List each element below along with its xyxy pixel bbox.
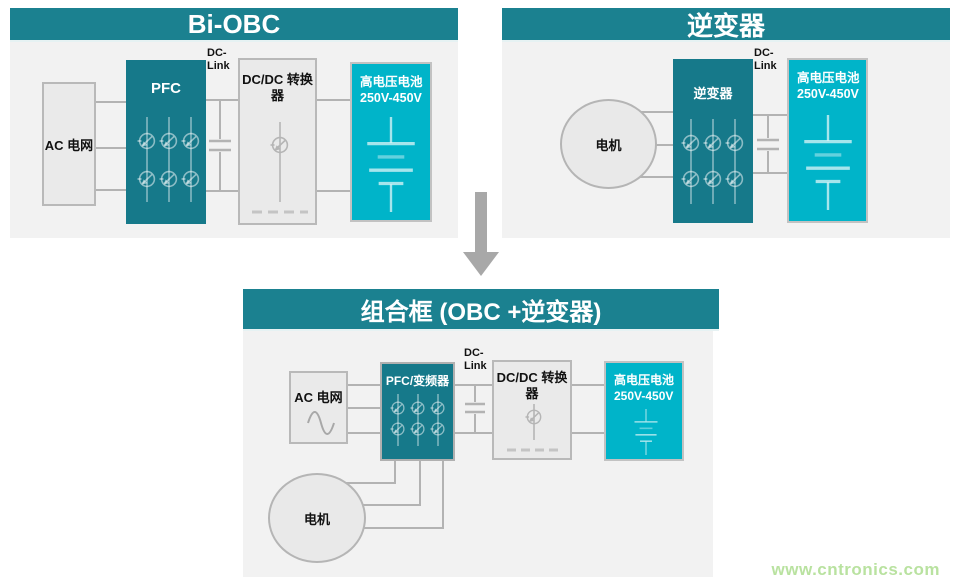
panel-combo-title: 组合框 (OBC +逆变器) xyxy=(361,292,602,327)
ac-grid-label: AC 电网 xyxy=(44,84,94,204)
panel-combo-body: DC- Link AC 电网 PFC/变频器 xyxy=(243,331,713,577)
panel-bi-obc-header: Bi-OBC xyxy=(10,8,458,42)
transistor-icon xyxy=(682,136,699,151)
dcdc-converter-box: DC/DC 转换 器 xyxy=(492,360,572,460)
dc-link-label: DC- Link xyxy=(464,347,487,372)
panel-bi-obc-title: Bi-OBC xyxy=(188,9,280,40)
motor-circle: 电机 xyxy=(268,473,366,563)
ac-grid-label: AC 电网 xyxy=(291,373,346,406)
transistor-icon xyxy=(160,134,177,149)
motor-circle: 电机 xyxy=(560,99,657,189)
transistor-icon xyxy=(430,402,444,414)
transistor-icon xyxy=(704,136,721,151)
transistor-icon xyxy=(704,172,721,187)
panel-combo-header: 组合框 (OBC +逆变器) xyxy=(243,289,719,331)
transistor-icon xyxy=(410,423,424,435)
hv-battery-box: 高电压电池 250V-450V xyxy=(604,361,684,461)
dc-link-label: DC- Link xyxy=(207,47,230,72)
inverter-box-label: 逆变器 xyxy=(673,59,753,102)
dc-link-label: DC- Link xyxy=(754,47,777,72)
transistor-icon xyxy=(726,172,743,187)
transistor-icon xyxy=(390,423,404,435)
transistor-icon xyxy=(726,136,743,151)
transistor-icon xyxy=(525,410,540,423)
ac-grid-box: AC 电网 xyxy=(289,371,348,444)
panel-bi-obc: Bi-OBC xyxy=(10,8,458,238)
pfc-inverter-box: PFC/变频器 xyxy=(380,362,455,461)
dcdc-converter-label: DC/DC 转换 器 xyxy=(494,362,570,403)
dcdc-converter-box: DC/DC 转换 器 xyxy=(238,58,317,225)
panel-inverter: 逆变器 DC- xyxy=(502,8,950,238)
dcdc-converter-label: DC/DC 转换 器 xyxy=(240,60,315,105)
transistor-icon xyxy=(160,172,177,187)
pfc-inverter-label: PFC/变频器 xyxy=(382,364,453,389)
transistor-icon xyxy=(271,138,288,153)
panel-inverter-header: 逆变器 xyxy=(502,8,950,42)
transistor-icon xyxy=(182,172,199,187)
panel-bi-obc-body: DC- Link AC 电网 PFC xyxy=(10,42,458,238)
panel-combo: 组合框 (OBC +逆变器) xyxy=(243,289,719,577)
transistor-icon xyxy=(682,172,699,187)
hv-battery-label: 高电压电池 250V-450V xyxy=(352,64,430,107)
panel-inverter-body: DC- Link 电机 逆变器 xyxy=(502,42,950,238)
inverter-box: 逆变器 xyxy=(673,59,753,223)
hv-battery-box: 高电压电池 250V-450V xyxy=(787,58,868,223)
transistor-icon xyxy=(390,402,404,414)
down-arrow-icon xyxy=(463,192,499,281)
ac-grid-box: AC 电网 xyxy=(42,82,96,206)
pfc-box: PFC xyxy=(126,60,206,224)
hv-battery-label: 高电压电池 250V-450V xyxy=(606,363,682,404)
pfc-label: PFC xyxy=(126,60,206,97)
transistor-icon xyxy=(138,134,155,149)
transistor-icon xyxy=(182,134,199,149)
transistor-icon xyxy=(138,172,155,187)
transistor-icon xyxy=(410,402,424,414)
transistor-icon xyxy=(430,423,444,435)
hv-battery-label: 高电压电池 250V-450V xyxy=(789,60,866,103)
watermark: www.cntronics.com xyxy=(770,560,940,580)
diagram-stage: Bi-OBC xyxy=(0,0,960,585)
hv-battery-box: 高电压电池 250V-450V xyxy=(350,62,432,222)
panel-inverter-title: 逆变器 xyxy=(687,6,765,43)
